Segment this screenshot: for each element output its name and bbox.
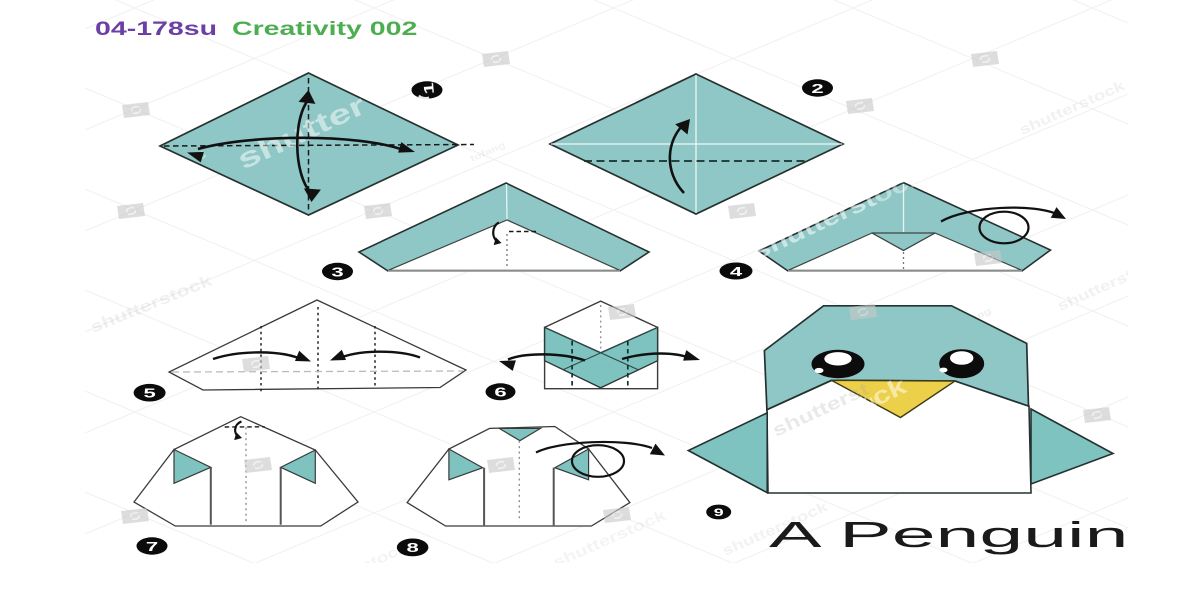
svg-text:5: 5 (143, 386, 155, 400)
svg-text:4: 4 (730, 264, 742, 278)
svg-text:8: 8 (406, 541, 418, 555)
svg-text:1: 1 (421, 82, 437, 95)
svg-text:9: 9 (714, 506, 724, 519)
svg-text:Creativity 002: Creativity 002 (232, 19, 417, 40)
svg-text:3: 3 (331, 265, 343, 279)
svg-text:A Penguin: A Penguin (769, 514, 1128, 555)
svg-text:6: 6 (494, 385, 506, 399)
svg-text:04-178su: 04-178su (95, 19, 217, 40)
svg-text:2: 2 (811, 81, 823, 95)
svg-text:7: 7 (146, 539, 158, 553)
